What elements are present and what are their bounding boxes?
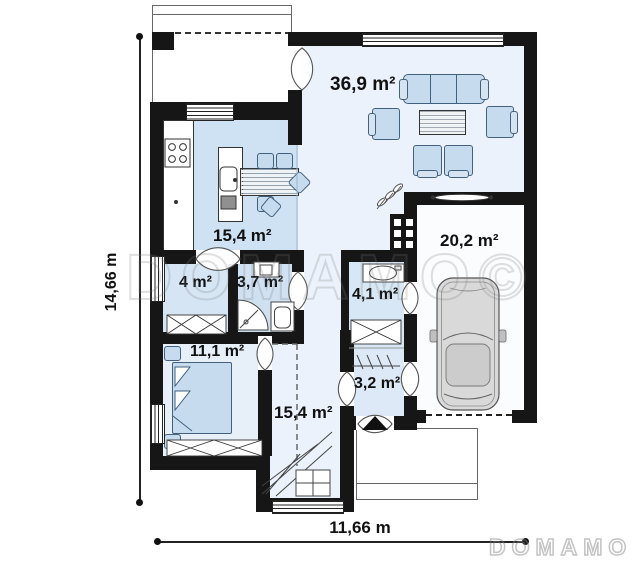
room-label-vestibule: 3,2 m² [354,375,400,393]
nightstand [164,434,181,449]
window [150,404,165,444]
room-label-kitchen: 15,4 m² [213,226,272,246]
wall [152,32,174,50]
terrace-edge-line [153,14,291,15]
floor-plan: 36,9 m² 15,4 m² 20,2 m² 4 m² 3,7 m² 4,1 … [0,0,640,563]
room-label-bedroom: 11,1 m² [190,343,244,361]
room-label-utility: 4,1 m² [352,286,398,304]
armchair-back [417,170,438,178]
door-opening [196,250,240,264]
window [362,33,504,47]
wall [404,192,537,205]
armchair-back [368,113,376,136]
dimension-endpoint [136,499,143,506]
terrace [152,5,292,104]
dimension-endpoint [136,33,143,40]
fireplace-vent [406,241,413,248]
kitchen-counter [163,120,194,254]
fireplace-vent [394,241,401,248]
dimension-endpoint [154,538,161,545]
fireplace [390,214,417,252]
fireplace-vent [394,219,401,226]
porch-step-line [357,483,477,484]
garage-door-dashed-line [426,414,512,416]
dimension-line-bottom [158,541,526,543]
wall [341,250,349,330]
dimension-label-width: 11,66 m [300,518,420,538]
dimension-line-left [139,38,141,503]
wall [340,416,354,512]
floor-corridor [296,198,404,250]
entrance-porch [356,428,478,500]
fireplace-vent [406,230,413,237]
bed [172,362,232,434]
nightstand [164,346,181,361]
room-label-hall: 15,4 m² [274,403,333,423]
wall [150,456,270,470]
fireplace-vent [406,219,413,226]
armchair [372,108,400,140]
room-label-pantry: 4 m² [179,274,212,292]
door-opening [292,272,304,310]
garage-door-opening [426,410,512,423]
sofa [403,74,485,104]
door-opening [288,46,302,90]
door-opening [404,282,417,314]
coffee-table [419,110,466,135]
sofa-armrest [399,79,408,100]
fireplace-vent [394,230,401,237]
window [272,500,344,514]
entrance-door-opening [356,416,394,430]
dimension-endpoint [522,538,529,545]
sofa-armrest [480,79,489,100]
armchair-back [510,111,518,134]
armchair-back [448,170,469,178]
window [150,256,165,302]
room-label-living: 36,9 m² [330,74,395,96]
roof-overhang-dashed-line [175,32,291,34]
room-label-garage: 20,2 m² [440,231,499,251]
door-opening [404,362,417,396]
floor-pantry [158,258,234,334]
dining-chair [276,153,293,169]
dimension-label-height: 14,66 m [103,237,121,327]
dining-chair [257,153,274,169]
door-opening [340,372,354,406]
watermark-logo: DOMAMO [489,534,632,561]
room-label-bathroom: 3,7 m² [237,274,283,292]
window [186,103,234,121]
floor-bathroom [232,258,296,332]
door-opening [258,336,272,370]
wall [524,32,537,423]
